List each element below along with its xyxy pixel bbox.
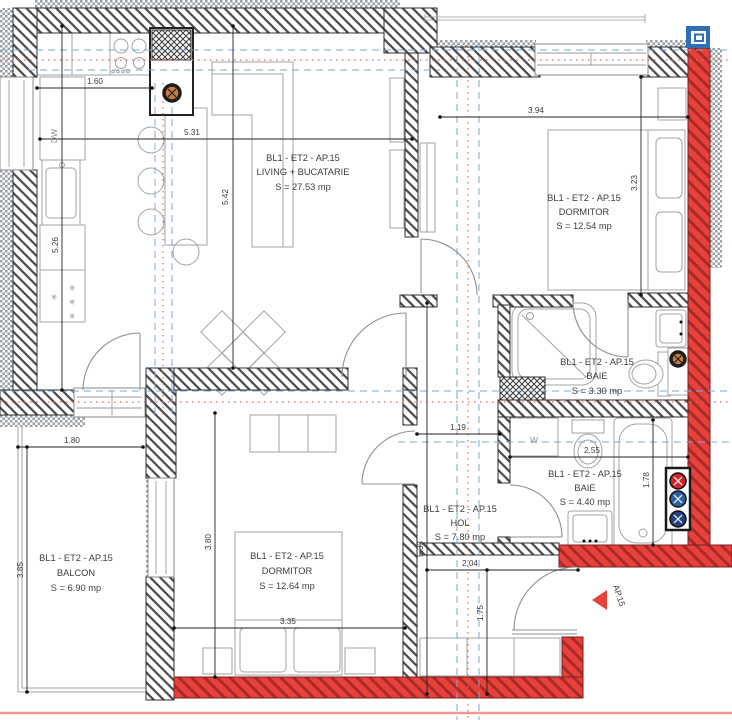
shower-icon	[512, 303, 596, 385]
svg-text:S = 27.53 mp: S = 27.53 mp	[275, 182, 331, 192]
sink-icon	[656, 310, 686, 347]
svg-text:5.31: 5.31	[184, 128, 200, 137]
nightstand	[203, 648, 232, 674]
svg-text:BL1 - ET2 - AP.15: BL1 - ET2 - AP.15	[547, 193, 621, 203]
svg-text:S = 3.30 mp: S = 3.30 mp	[572, 386, 622, 396]
dim-5-31: 5.31	[38, 128, 414, 141]
svg-text:S = 6.90 mp: S = 6.90 mp	[51, 583, 101, 593]
kitchen-counter-low	[40, 225, 85, 270]
svg-text:S = 12.64 mp: S = 12.64 mp	[259, 581, 315, 591]
parapet-line	[425, 14, 645, 23]
kitchen-window	[0, 77, 33, 170]
svg-text:3.23: 3.23	[630, 175, 639, 191]
wardrobe	[250, 415, 336, 452]
gas-marker-icon	[164, 85, 180, 101]
nightstand	[658, 88, 686, 120]
fridge	[40, 270, 85, 322]
svg-text:BAIE: BAIE	[574, 483, 595, 493]
freezer-star: ✳	[68, 311, 75, 321]
masonry-block	[500, 377, 545, 400]
bedroom2-balcony-window	[148, 478, 174, 577]
pillow	[294, 628, 340, 672]
svg-text:BL1 - ET2 - AP.15: BL1 - ET2 - AP.15	[548, 469, 622, 479]
svg-text:5.26: 5.26	[51, 237, 60, 253]
hall-furniture	[420, 638, 560, 676]
entrance-door	[512, 567, 577, 634]
washing-machine-label: W	[530, 435, 538, 445]
svg-text:BL1 - ET2 - AP.15: BL1 - ET2 - AP.15	[250, 551, 324, 561]
vent-shaft-icon	[686, 26, 710, 48]
bar-stool	[138, 209, 164, 235]
svg-text:HOL: HOL	[450, 518, 469, 528]
living-furniture	[201, 62, 404, 395]
svg-text:BL1 - ET2 - AP.15: BL1 - ET2 - AP.15	[423, 504, 497, 514]
pillow	[240, 628, 286, 672]
gas-marker-icon	[671, 352, 685, 366]
toilet-icon	[572, 420, 604, 468]
dishwasher	[40, 77, 85, 160]
svg-text:3.80: 3.80	[204, 534, 213, 550]
dim-1-80: 1.80	[16, 436, 145, 449]
svg-text:LIVING + BUCATARIE: LIVING + BUCATARIE	[257, 167, 350, 177]
entrance-arrow-icon	[592, 590, 607, 610]
svg-text:S = 7.80 mp: S = 7.80 mp	[435, 532, 485, 542]
dim-2-04: 2.04	[425, 559, 580, 572]
svg-text:BAIE: BAIE	[586, 371, 607, 381]
bedroom2-furniture	[203, 415, 375, 675]
room-label-hol: BL1 - ET2 - AP.15 HOL S = 7.80 mp	[423, 504, 497, 542]
svg-text:BL1 - ET2 - AP.15: BL1 - ET2 - AP.15	[266, 153, 340, 163]
sink-icon	[568, 511, 612, 547]
dim-5-33: 5.33	[416, 301, 429, 696]
dim-1-19: 1.19	[415, 423, 502, 436]
svg-text:BL1 - ET2 - AP.15: BL1 - ET2 - AP.15	[560, 357, 634, 367]
svg-text:DORMITOR: DORMITOR	[262, 566, 313, 576]
floor-plan: 1.60 5.31 5.42 5.26 3.94 3.23 1.19 2.55	[0, 0, 732, 720]
svg-text:DORMITOR: DORMITOR	[559, 207, 610, 217]
pillow	[656, 212, 682, 272]
bedroom1-furniture	[420, 88, 686, 290]
bar-stool	[138, 168, 164, 194]
kitchen-counter	[37, 33, 110, 75]
svg-text:3.85: 3.85	[16, 562, 25, 578]
living-hall-door	[342, 313, 406, 377]
dim-3-94: 3.94	[438, 106, 690, 119]
masonry-block	[152, 30, 191, 60]
room-label-baie2: BL1 - ET2 - AP.15 BAIE S = 4.40 mp	[548, 469, 622, 507]
svg-text:BL1 - ET2 - AP.15: BL1 - ET2 - AP.15	[39, 553, 113, 563]
interior-walls	[150, 28, 688, 677]
svg-text:3.94: 3.94	[528, 106, 544, 115]
pillow	[656, 138, 682, 198]
svg-text:S = 12.54 mp: S = 12.54 mp	[556, 221, 612, 231]
bedroom2-door	[362, 431, 415, 484]
kitchen-sink-icon	[42, 160, 80, 225]
dim-3-35: 3.35	[172, 617, 407, 630]
svg-text:1.75: 1.75	[476, 605, 485, 621]
svg-text:1.60: 1.60	[87, 77, 103, 86]
axis-grid	[0, 14, 732, 720]
stove-icon	[110, 33, 150, 75]
svg-text:BALCON: BALCON	[57, 568, 95, 578]
dim-3-80: 3.80	[204, 411, 217, 679]
svg-text:1.80: 1.80	[64, 436, 80, 445]
freezer-star: ✳	[68, 283, 75, 293]
freezer-star: ✳	[68, 297, 75, 307]
entrance-marker: AP.15	[592, 584, 628, 610]
tv-cabinet	[390, 78, 404, 142]
bar-stool	[138, 127, 164, 153]
svg-text:1.19: 1.19	[450, 423, 466, 432]
svg-text:5.42: 5.42	[221, 189, 230, 205]
room-label-balcon: BL1 - ET2 - AP.15 BALCON S = 6.90 mp	[39, 553, 113, 593]
svg-text:1.78: 1.78	[642, 472, 651, 488]
svg-text:S = 4.40 mp: S = 4.40 mp	[560, 497, 610, 507]
svg-text:3.35: 3.35	[280, 617, 296, 626]
hall-cabinet	[420, 638, 560, 676]
balcony-door	[83, 333, 140, 390]
svg-text:2.04: 2.04	[462, 559, 478, 568]
nightstand	[345, 648, 375, 674]
utility-risers	[666, 468, 690, 530]
svg-text:2.55: 2.55	[584, 446, 600, 455]
tv-cabinet	[390, 150, 404, 228]
bathroom2-door	[510, 485, 562, 537]
svg-text:5.33: 5.33	[416, 541, 425, 557]
floor-plan-canvas: 1.60 5.31 5.42 5.26 3.94 3.23 1.19 2.55	[0, 0, 732, 720]
freezer-star: ✳	[50, 292, 57, 302]
dishwasher-label: DW	[49, 129, 59, 143]
toilet-icon	[629, 352, 670, 396]
entrance-apartment-label: AP.15	[611, 584, 627, 608]
